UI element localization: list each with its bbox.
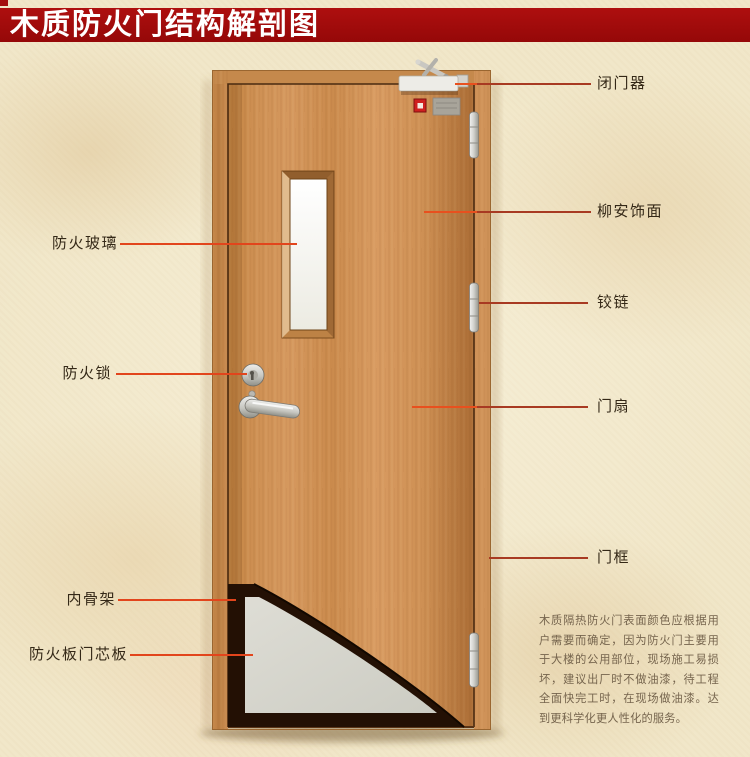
- label-door-frame: 门框: [597, 550, 630, 566]
- label-door-closer: 闭门器: [597, 76, 647, 92]
- label-hinge: 铰链: [597, 295, 630, 311]
- glass-window-graphic: [282, 171, 334, 338]
- description-text: 木质隔热防火门表面颜色应根据用户需要而确定，因为防火门主要用于大楼的公用部位，现…: [539, 612, 719, 730]
- label-fire-glass: 防火玻璃: [20, 236, 118, 252]
- label-fire-lock: 防火锁: [20, 366, 112, 382]
- vent-plate-graphic: [433, 98, 460, 115]
- indicator-light-graphic: [414, 99, 426, 112]
- label-door-leaf: 门扇: [597, 399, 630, 415]
- page: 木质防火门结构解剖图: [0, 0, 750, 757]
- label-lauan-veneer: 柳安饰面: [597, 204, 663, 220]
- label-fire-board-core: 防火板门芯板: [13, 647, 128, 663]
- label-inner-skeleton: 内骨架: [20, 592, 116, 608]
